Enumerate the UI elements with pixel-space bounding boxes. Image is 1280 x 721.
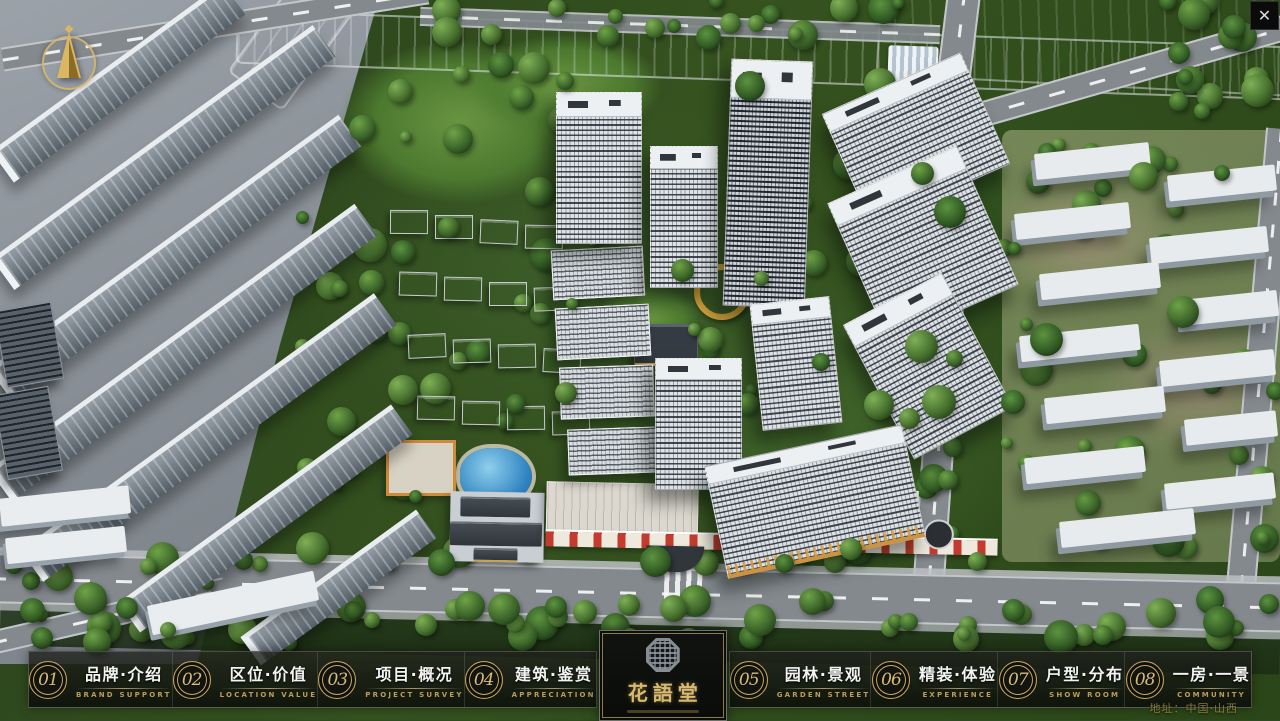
bottom-navbar: 01 品牌·介绍 BRAND SUPPORT 02 区位·价值 LOCATION… [28, 651, 1252, 708]
courtyard-villa [399, 272, 438, 297]
nav-number: 07 [1008, 670, 1028, 690]
close-button[interactable]: ✕ [1250, 1, 1279, 30]
nav-badge: 01 [29, 661, 67, 699]
nav-strip-left: 01 品牌·介绍 BRAND SUPPORT 02 区位·价值 LOCATION… [28, 651, 597, 708]
nav-item-project[interactable]: 03 项目·概况 PROJECT SURVEY [317, 652, 463, 707]
project-address: 地址：中国·山西 [1150, 700, 1239, 716]
courtyard-villa [462, 401, 500, 426]
nav-item-brand[interactable]: 01 品牌·介绍 BRAND SUPPORT [29, 652, 172, 707]
nav-item-garden[interactable]: 05 园林·景观 GARDEN STREET [730, 652, 871, 707]
nav-divider [919, 688, 997, 689]
nav-badge: 02 [173, 661, 211, 699]
tree [443, 124, 473, 154]
tree [748, 15, 765, 32]
tree [608, 9, 623, 24]
tree [428, 549, 455, 576]
tree [812, 353, 830, 371]
tree [432, 17, 462, 47]
nav-number: 05 [739, 670, 759, 690]
tree [506, 394, 525, 413]
tree [518, 52, 550, 84]
nav-label-zh: 园林·景观 [785, 661, 863, 685]
nav-labels: 户型·分布 SHOW ROOM [1046, 661, 1124, 699]
nav-number: 01 [38, 670, 58, 690]
nav-divider [512, 688, 596, 689]
courtyard-villa [479, 219, 518, 245]
tree [597, 25, 619, 47]
tree [968, 552, 987, 571]
courtyard-villa [417, 396, 456, 421]
courtyard-villa [444, 277, 482, 302]
nav-label-en: GARDEN STREET [777, 691, 871, 699]
nav-label-en: SHOW ROOM [1049, 691, 1120, 699]
tree [1001, 390, 1025, 414]
nav-labels: 一房·一景 COMMUNITY [1173, 661, 1251, 699]
tree [900, 613, 918, 631]
tree [1214, 165, 1230, 181]
tree [525, 177, 554, 206]
tree [415, 614, 437, 636]
nav-label-en: LOCATION VALUE [220, 691, 318, 699]
tree [744, 604, 776, 636]
tree [922, 385, 956, 419]
gate-roof [460, 496, 530, 517]
nav-labels: 精装·体验 EXPERIENCE [919, 661, 997, 699]
nav-number: 03 [327, 670, 347, 690]
compass-arrow-shade [69, 40, 79, 78]
nav-label-zh: 区位·价值 [230, 661, 308, 685]
nav-label-zh: 建筑·鉴赏 [515, 661, 593, 685]
tree [789, 27, 803, 41]
nav-item-architecture[interactable]: 04 建筑·鉴赏 APPRECIATION [464, 652, 596, 707]
tree [1167, 201, 1184, 218]
tree [31, 627, 53, 649]
tree [688, 323, 701, 336]
tree [1222, 15, 1246, 39]
tree [1229, 445, 1249, 465]
midrise-building [567, 426, 659, 475]
tree [830, 0, 858, 22]
nav-item-interior[interactable]: 06 精装·体验 EXPERIENCE [870, 652, 997, 707]
courtyard-villa [453, 338, 492, 363]
tree [938, 470, 958, 490]
tree [1194, 103, 1210, 119]
nav-number: 04 [474, 670, 494, 690]
brand-seal-pattern [649, 641, 677, 669]
tree [1256, 531, 1270, 545]
gate-roof [473, 548, 517, 563]
logo-panel: 花語堂 [599, 630, 727, 721]
nav-number: 06 [881, 670, 901, 690]
tree [388, 375, 418, 405]
nav-badge: 04 [465, 661, 503, 699]
tree [388, 79, 413, 104]
tree [364, 612, 380, 628]
tree [555, 382, 577, 404]
midrise-building [551, 246, 645, 301]
nav-label-zh: 户型·分布 [1046, 661, 1124, 685]
tree [488, 52, 514, 78]
tree [331, 280, 348, 297]
nav-label-en: BRAND SUPPORT [76, 691, 172, 699]
tree [116, 597, 138, 619]
tree [660, 595, 687, 622]
tree [696, 25, 721, 50]
tree [160, 622, 176, 638]
courtyard-villa [498, 344, 537, 369]
tree [645, 18, 665, 38]
tree [934, 196, 966, 228]
tree [438, 217, 459, 238]
tree [140, 558, 157, 575]
compass-icon [36, 30, 102, 96]
nav-number: 02 [182, 670, 202, 690]
tree [1030, 323, 1063, 356]
brand-name: 花語堂 [623, 677, 703, 706]
nav-divider [220, 688, 318, 689]
tree [252, 556, 268, 572]
tree [899, 408, 920, 429]
tree [667, 19, 681, 33]
tree [359, 270, 384, 295]
tree [671, 259, 694, 282]
nav-labels: 区位·价值 LOCATION VALUE [220, 661, 318, 699]
nav-labels: 项目·概况 PROJECT SURVEY [365, 661, 463, 699]
tree [296, 532, 329, 565]
chinese-gate [449, 491, 544, 563]
tree [400, 131, 412, 143]
nav-item-floorplan[interactable]: 07 户型·分布 SHOW ROOM [997, 652, 1124, 707]
tree [840, 538, 862, 560]
tree [556, 72, 574, 90]
tree [573, 600, 597, 624]
nav-label-en: COMMUNITY [1177, 691, 1246, 699]
tree [911, 162, 934, 185]
nav-divider [76, 688, 172, 689]
highrise-tower [556, 92, 642, 244]
nav-label-zh: 精装·体验 [919, 661, 997, 685]
nav-divider [1046, 688, 1124, 689]
tree [453, 66, 470, 83]
tree [1259, 594, 1279, 614]
gate-roof [450, 521, 542, 547]
tree [775, 554, 794, 573]
tree [799, 588, 826, 615]
courtyard-villa [489, 282, 527, 306]
tree [344, 601, 362, 619]
nav-labels: 园林·景观 GARDEN STREET [777, 661, 871, 699]
nav-badge: 03 [318, 661, 356, 699]
tree [409, 490, 422, 503]
tree [1241, 74, 1274, 107]
tree [957, 627, 971, 641]
tree [509, 85, 534, 110]
tree [640, 546, 671, 577]
nav-labels: 建筑·鉴赏 APPRECIATION [512, 661, 596, 699]
courtyard-villa [390, 210, 428, 234]
tree [1146, 598, 1176, 628]
tree [905, 330, 938, 363]
nav-badge: 06 [872, 661, 910, 699]
tree [455, 591, 485, 621]
tree [698, 327, 723, 352]
highrise-tower [723, 59, 814, 309]
tree [864, 390, 894, 420]
nav-label-en: PROJECT SURVEY [365, 691, 463, 699]
brand-subtext [627, 710, 699, 713]
tree [349, 115, 376, 142]
tree [1093, 625, 1113, 645]
tree [1020, 318, 1033, 331]
tree [1266, 382, 1280, 400]
tree [720, 13, 741, 34]
tree [1129, 162, 1158, 191]
clubhouse [386, 440, 456, 496]
tree [481, 24, 502, 45]
tree [1169, 92, 1188, 111]
nav-label-zh: 项目·概况 [376, 661, 454, 685]
nav-label-en: EXPERIENCE [922, 691, 993, 699]
tree [74, 582, 107, 615]
nav-divider [365, 688, 463, 689]
tree [1001, 437, 1013, 449]
tree [946, 350, 963, 367]
tree [391, 240, 415, 264]
nav-item-location[interactable]: 02 区位·价值 LOCATION VALUE [172, 652, 318, 707]
tree [735, 71, 765, 101]
tree [1203, 606, 1235, 638]
nav-divider [1173, 688, 1251, 689]
nav-badge: 05 [730, 661, 768, 699]
brand-seal-icon [646, 638, 680, 672]
tree [296, 211, 309, 224]
aerial-map-view [0, 0, 1280, 720]
nav-badge: 08 [1126, 661, 1164, 699]
nav-label-zh: 品牌·介绍 [85, 661, 163, 685]
nav-divider [777, 688, 871, 689]
tree [1002, 599, 1025, 622]
tree [1168, 42, 1190, 64]
nav-label-zh: 一房·一景 [1173, 661, 1251, 685]
courtyard-villa [407, 333, 446, 359]
tree [488, 593, 520, 625]
tree [754, 271, 769, 286]
nav-labels: 品牌·介绍 BRAND SUPPORT [76, 661, 172, 699]
tree [618, 594, 640, 616]
tree [709, 0, 723, 8]
nav-number: 08 [1135, 670, 1155, 690]
tree [545, 596, 567, 618]
tree [1044, 620, 1078, 654]
tree [1075, 490, 1101, 516]
tree [566, 298, 578, 310]
midrise-building [555, 304, 652, 361]
nav-label-en: APPRECIATION [512, 691, 596, 699]
tree [1008, 242, 1021, 255]
tree [20, 598, 45, 623]
tree [1167, 296, 1199, 328]
nav-badge: 07 [999, 661, 1037, 699]
nav-item-community[interactable]: 08 一房·一景 COMMUNITY [1124, 652, 1251, 707]
tree [1177, 69, 1193, 85]
